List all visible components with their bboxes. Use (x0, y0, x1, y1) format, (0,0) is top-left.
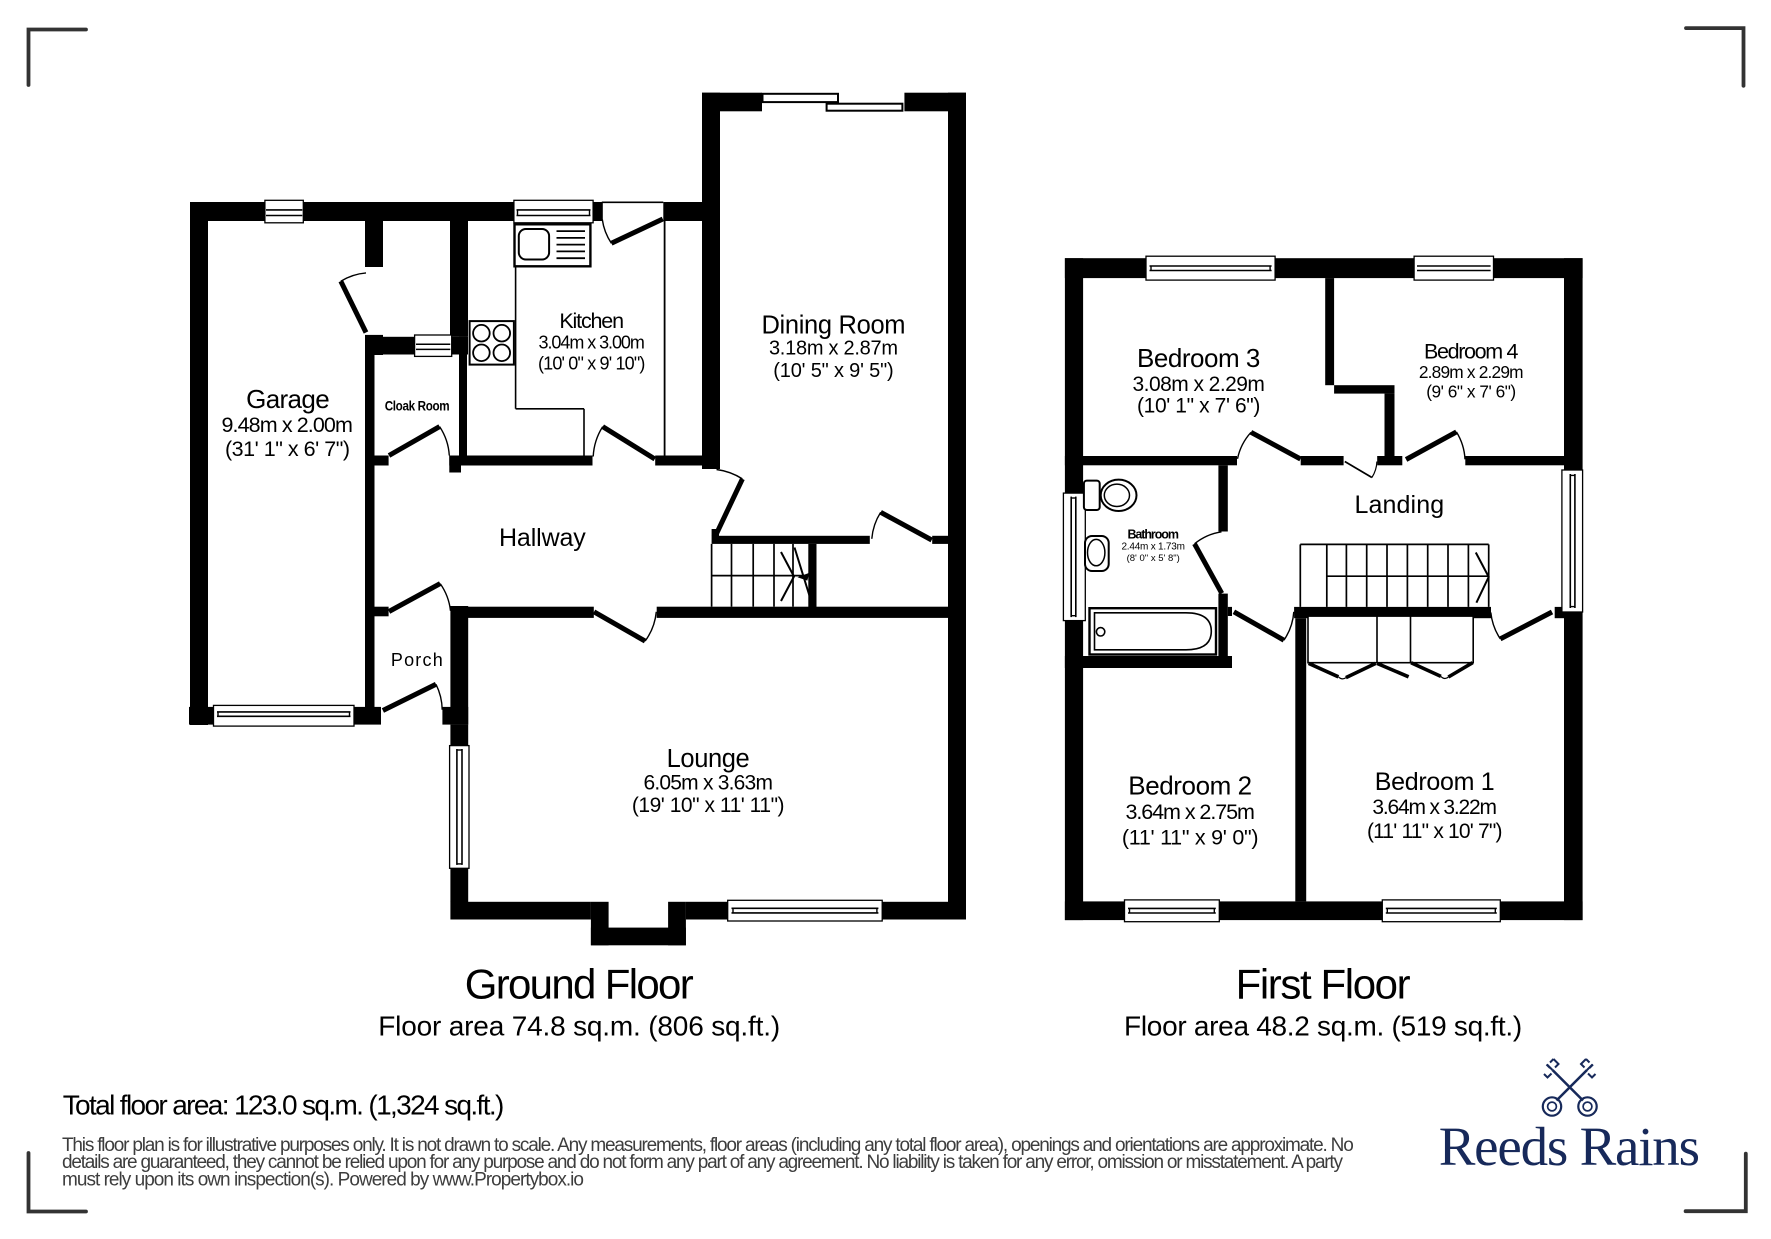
svg-text:3.64m x 3.22m: 3.64m x 3.22m (1372, 796, 1496, 819)
svg-text:3.64m x 2.75m: 3.64m x 2.75m (1125, 800, 1254, 824)
svg-text:Reeds Rains: Reeds Rains (1439, 1116, 1700, 1177)
svg-text:2.44m x 1.73m: 2.44m x 1.73m (1121, 541, 1184, 552)
svg-text:Floor area 48.2 sq.m. (519 sq.: Floor area 48.2 sq.m. (519 sq.ft.) (1124, 1010, 1522, 1041)
svg-text:First Floor: First Floor (1236, 960, 1411, 1007)
svg-text:Ground Floor: Ground Floor (465, 960, 694, 1007)
svg-text:(10' 0" x 9' 10"): (10' 0" x 9' 10") (538, 353, 645, 373)
svg-text:(8' 0" x 5' 8"): (8' 0" x 5' 8") (1127, 553, 1180, 564)
svg-text:(9' 6" x 7' 6"): (9' 6" x 7' 6") (1426, 382, 1515, 402)
svg-text:Lounge: Lounge (667, 745, 750, 773)
svg-text:9.48m x 2.00m: 9.48m x 2.00m (222, 413, 353, 437)
svg-text:2.89m x 2.29m: 2.89m x 2.29m (1419, 362, 1523, 382)
svg-text:Floor area 74.8 sq.m. (806 sq.: Floor area 74.8 sq.m. (806 sq.ft.) (378, 1010, 780, 1041)
svg-text:(10' 5" x 9' 5"): (10' 5" x 9' 5") (773, 360, 893, 382)
svg-text:3.18m x 2.87m: 3.18m x 2.87m (769, 338, 898, 360)
svg-text:Total floor area: 123.0 sq.m.: Total floor area: 123.0 sq.m. (1,324 sq.… (63, 1090, 505, 1121)
svg-text:Porch: Porch (391, 650, 443, 670)
svg-text:Bedroom 4: Bedroom 4 (1424, 340, 1519, 364)
svg-text:Bedroom 2: Bedroom 2 (1128, 771, 1251, 801)
svg-text:3.08m x 2.29m: 3.08m x 2.29m (1133, 373, 1265, 396)
svg-text:must rely upon its own inspect: must rely upon its own inspection(s). Po… (62, 1169, 584, 1190)
svg-text:6.05m x 3.63m: 6.05m x 3.63m (643, 772, 772, 795)
svg-text:Bathroom: Bathroom (1127, 528, 1178, 542)
svg-text:Bedroom 3: Bedroom 3 (1137, 343, 1260, 373)
svg-text:Bedroom 1: Bedroom 1 (1375, 768, 1495, 796)
svg-text:(31' 1" x 6' 7"): (31' 1" x 6' 7") (225, 437, 350, 461)
svg-text:Kitchen: Kitchen (559, 309, 623, 333)
svg-text:(11' 11" x 9' 0"): (11' 11" x 9' 0") (1122, 825, 1258, 849)
svg-text:Landing: Landing (1354, 491, 1443, 519)
svg-text:(11' 11" x 10' 7"): (11' 11" x 10' 7") (1367, 820, 1502, 843)
svg-text:(10' 1" x 7' 6"): (10' 1" x 7' 6") (1137, 395, 1260, 418)
svg-text:Dining Room: Dining Room (761, 311, 905, 339)
svg-text:Hallway: Hallway (499, 524, 586, 552)
svg-text:(19' 10" x 11' 11"): (19' 10" x 11' 11") (632, 794, 784, 817)
svg-text:3.04m x 3.00m: 3.04m x 3.00m (539, 333, 645, 353)
svg-text:Garage: Garage (246, 384, 329, 414)
svg-text:Cloak Room: Cloak Room (385, 398, 450, 413)
